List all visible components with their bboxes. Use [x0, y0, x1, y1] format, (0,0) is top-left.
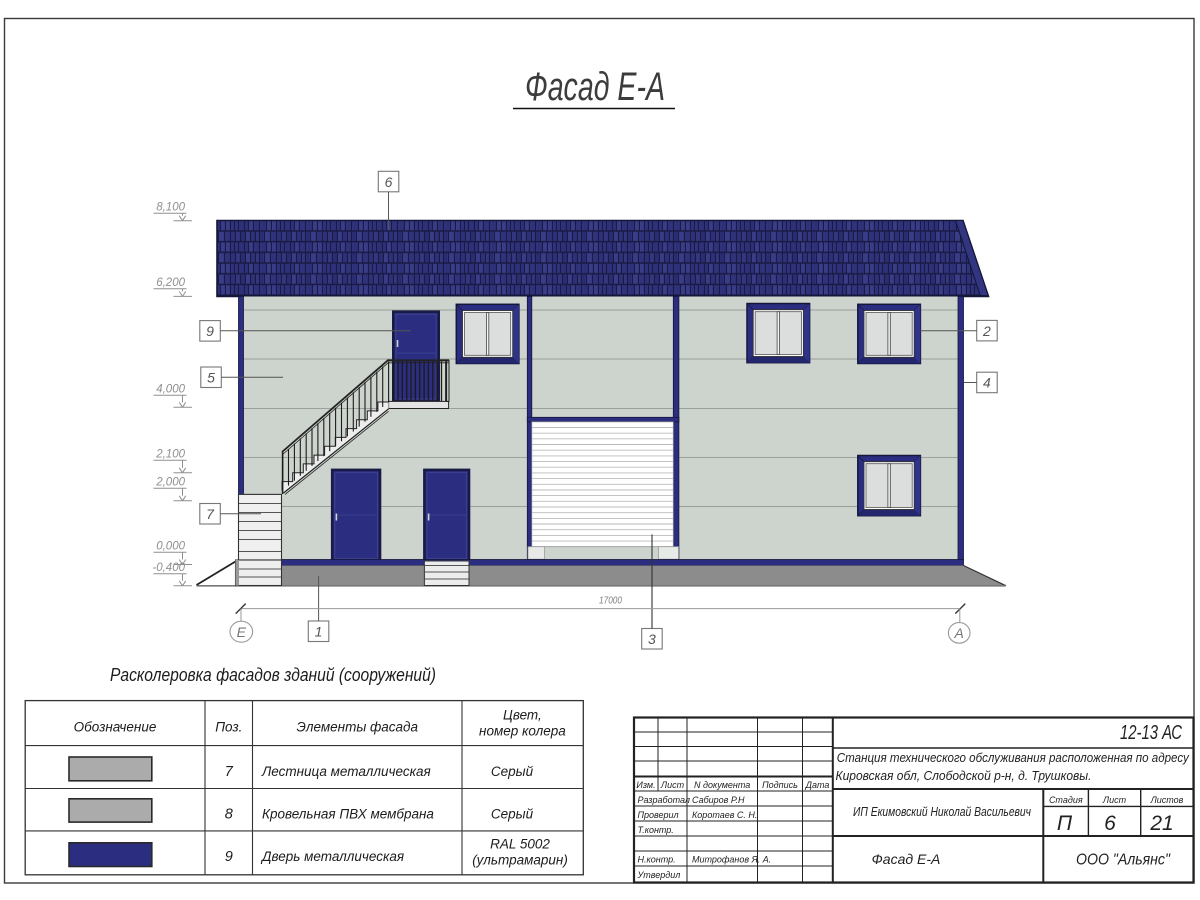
- svg-text:Проверил: Проверил: [638, 810, 679, 820]
- svg-text:Серый: Серый: [491, 764, 534, 779]
- svg-text:9: 9: [206, 323, 214, 339]
- svg-text:5: 5: [207, 370, 215, 386]
- svg-text:12-13 АС: 12-13 АС: [1120, 722, 1182, 744]
- svg-text:Фасад Е-А: Фасад Е-А: [525, 65, 665, 109]
- svg-text:9: 9: [225, 849, 233, 865]
- svg-text:8,100: 8,100: [156, 202, 185, 214]
- svg-text:4: 4: [983, 375, 991, 391]
- svg-text:Листов: Листов: [1150, 795, 1184, 805]
- svg-text:N документа: N документа: [694, 780, 750, 790]
- svg-text:8: 8: [225, 807, 233, 823]
- svg-text:Подпись: Подпись: [762, 780, 798, 790]
- svg-text:2,100: 2,100: [155, 449, 185, 461]
- svg-text:Стадия: Стадия: [1049, 795, 1083, 805]
- svg-text:Утвердил: Утвердил: [637, 870, 681, 880]
- svg-text:2,000: 2,000: [155, 477, 185, 489]
- svg-text:RAL 5002: RAL 5002: [490, 837, 550, 852]
- svg-text:Изм.: Изм.: [636, 780, 655, 790]
- svg-text:Дата: Дата: [805, 780, 830, 790]
- svg-text:Кровельная ПВХ мембрана: Кровельная ПВХ мембрана: [262, 807, 434, 822]
- svg-text:(ультрамарин): (ультрамарин): [472, 853, 568, 868]
- svg-text:17000: 17000: [599, 595, 622, 607]
- svg-text:Элементы фасада: Элементы фасада: [297, 720, 419, 735]
- svg-text:Е: Е: [237, 624, 247, 640]
- svg-text:2: 2: [982, 323, 991, 339]
- svg-text:Н.контр.: Н.контр.: [638, 855, 676, 865]
- svg-text:Коротаев С. Н.: Коротаев С. Н.: [692, 810, 757, 820]
- svg-text:Обозначение: Обозначение: [74, 720, 157, 735]
- svg-text:Сабиров Р.Н: Сабиров Р.Н: [692, 795, 745, 805]
- svg-text:Разработал: Разработал: [638, 795, 690, 805]
- svg-text:7: 7: [225, 764, 234, 780]
- svg-text:6: 6: [1104, 812, 1116, 835]
- svg-text:ООО "Альянс": ООО "Альянс": [1076, 852, 1171, 869]
- svg-text:Дверь металлическая: Дверь металлическая: [260, 849, 404, 864]
- svg-text:ИП Екимовский Николай Васильев: ИП Екимовский Николай Васильевич: [853, 805, 1031, 819]
- svg-text:Т.контр.: Т.контр.: [638, 825, 674, 835]
- svg-text:Лист: Лист: [1102, 795, 1127, 805]
- svg-text:Цвет,: Цвет,: [503, 708, 542, 723]
- svg-text:6: 6: [385, 174, 393, 190]
- svg-text:номер колера: номер колера: [479, 724, 566, 739]
- svg-text:Расколеровка фасадов зданий (с: Расколеровка фасадов зданий (сооружений): [110, 665, 436, 685]
- svg-text:1: 1: [315, 624, 323, 640]
- svg-text:П: П: [1057, 812, 1073, 835]
- svg-text:Кировская обл, Слободской р-н,: Кировская обл, Слободской р-н, д. Трушко…: [836, 768, 1092, 783]
- svg-text:21: 21: [1149, 812, 1173, 835]
- svg-text:-0,400: -0,400: [152, 562, 185, 574]
- svg-text:Станция технического обслужива: Станция технического обслуживания распол…: [837, 750, 1190, 765]
- svg-text:Серый: Серый: [491, 807, 534, 822]
- svg-text:А: А: [954, 625, 964, 641]
- svg-text:3: 3: [648, 631, 656, 647]
- svg-text:7: 7: [206, 506, 215, 522]
- svg-text:Лист: Лист: [660, 780, 685, 790]
- svg-text:Фасад Е-А: Фасад Е-А: [872, 851, 941, 867]
- svg-text:Поз.: Поз.: [215, 720, 242, 735]
- svg-text:6,200: 6,200: [156, 277, 185, 289]
- svg-text:Митрофанов Я. А.: Митрофанов Я. А.: [692, 855, 771, 865]
- svg-text:Лестница металлическая: Лестница металлическая: [261, 764, 431, 779]
- svg-text:4,000: 4,000: [156, 384, 185, 396]
- svg-text:0,000: 0,000: [156, 541, 185, 553]
